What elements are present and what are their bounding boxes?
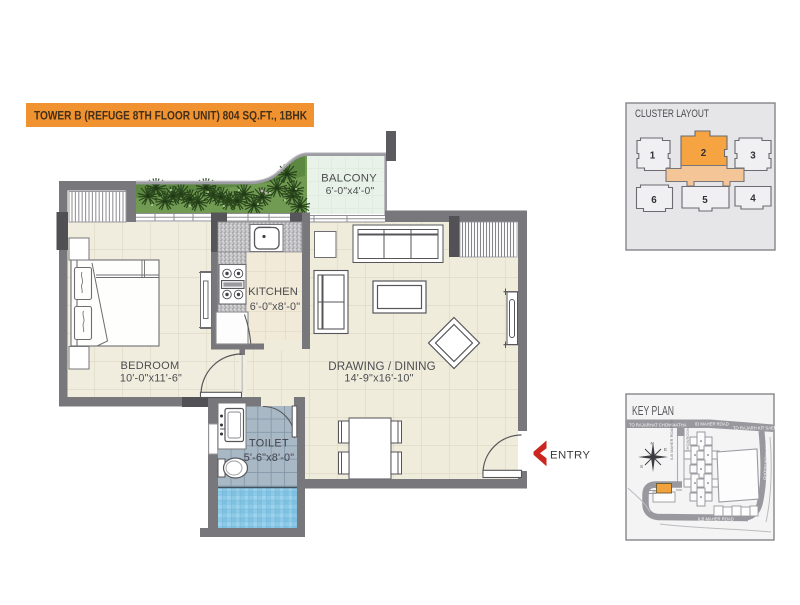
svg-text:3: 3	[750, 151, 756, 162]
svg-text:2: 2	[701, 148, 707, 159]
svg-text:TO RAJARH KIT SAEMAJE: TO RAJARH KIT SAEMAJE	[733, 426, 785, 431]
svg-text:BALCONY: BALCONY	[321, 173, 377, 185]
svg-text:4: 4	[750, 194, 756, 205]
svg-text:6'-0"x4'-0": 6'-0"x4'-0"	[326, 186, 375, 197]
svg-text:SHOWROOM: SHOWROOM	[685, 427, 690, 452]
svg-text:KEY PLAN: KEY PLAN	[632, 404, 674, 418]
svg-text:DRAWING / DINING: DRAWING / DINING	[328, 360, 435, 373]
svg-text:TOILET: TOILET	[249, 438, 289, 450]
svg-text:6: 6	[651, 195, 657, 206]
svg-text:10'-0"x11'-6": 10'-0"x11'-6"	[120, 373, 182, 385]
svg-text:ILB MAHER ROAD: ILB MAHER ROAD	[698, 517, 734, 522]
svg-text:N: N	[651, 441, 654, 446]
svg-text:CLUSTER LAYOUT: CLUSTER LAYOUT	[635, 108, 709, 120]
svg-text:BEDROOM: BEDROOM	[121, 360, 180, 372]
svg-text:TOWER B (REFUGE 8TH FLOOR UNIT: TOWER B (REFUGE 8TH FLOOR UNIT) 804 SQ.F…	[34, 109, 307, 123]
svg-text:S: S	[640, 464, 643, 469]
svg-text:ENTRY: ENTRY	[550, 450, 590, 462]
svg-text:TO RAJARHAT CHOWMATHA: TO RAJARHAT CHOWMATHA	[629, 423, 687, 428]
svg-text:1: 1	[650, 151, 656, 162]
svg-text:14'-9"x16'-10": 14'-9"x16'-10"	[344, 373, 413, 385]
svg-text:ILB MAHER ROADWY: ILB MAHER ROADWY	[669, 419, 674, 460]
svg-text:6'-0"x8'-0": 6'-0"x8'-0"	[250, 301, 301, 313]
svg-text:5'-6"x8'-0": 5'-6"x8'-0"	[244, 452, 295, 464]
svg-text:KITCHEN: KITCHEN	[248, 286, 298, 298]
svg-text:E: E	[664, 447, 667, 452]
svg-text:ID MAHER ROAD: ID MAHER ROAD	[695, 422, 729, 427]
svg-text:5: 5	[702, 195, 708, 206]
